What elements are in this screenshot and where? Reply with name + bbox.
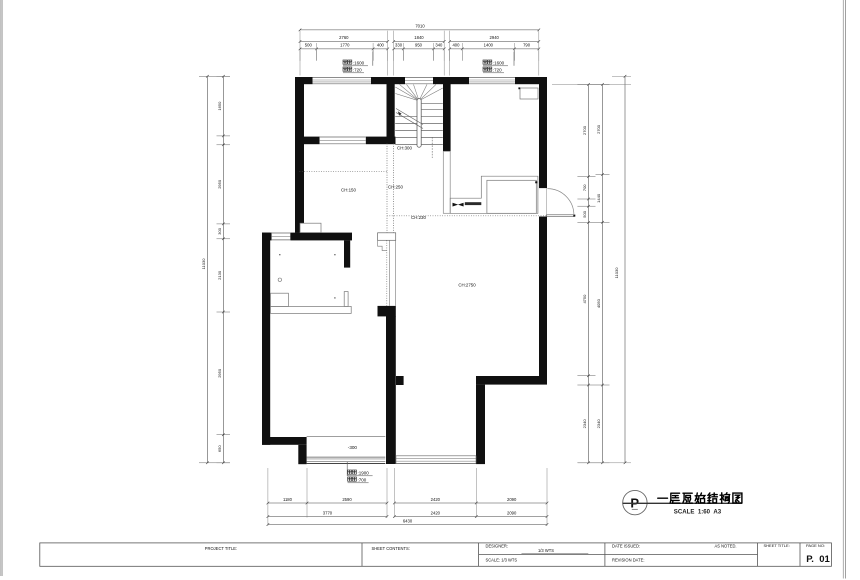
svg-text:400: 400 [452, 43, 460, 48]
svg-text:SCALE: 1/3 WTS: SCALE: 1/3 WTS [486, 558, 518, 563]
svg-text:CH:250: CH:250 [388, 185, 403, 190]
svg-text:2090: 2090 [507, 497, 517, 502]
svg-text::1600: :1600 [493, 60, 505, 65]
svg-text:340: 340 [435, 43, 443, 48]
svg-text:CH:2750: CH:2750 [458, 283, 476, 288]
svg-text:2090: 2090 [507, 510, 517, 515]
svg-text:11030: 11030 [614, 267, 619, 279]
svg-text:400: 400 [377, 43, 385, 48]
svg-text:700: 700 [582, 184, 587, 191]
svg-text:CH:150: CH:150 [341, 188, 356, 193]
svg-text:2130: 2130 [217, 270, 222, 280]
svg-text:4050: 4050 [596, 298, 601, 308]
svg-text:2940: 2940 [490, 35, 500, 40]
svg-text:1180: 1180 [283, 497, 293, 502]
svg-text:DATE ISSUED:: DATE ISSUED: [612, 543, 640, 548]
svg-text:3770: 3770 [323, 510, 333, 515]
svg-text:2700: 2700 [582, 125, 587, 135]
svg-text:CH:230: CH:230 [411, 215, 426, 220]
svg-text:4750: 4750 [582, 294, 587, 304]
svg-text::720: :720 [353, 67, 362, 72]
svg-text:REVISION DATE:: REVISION DATE: [612, 558, 644, 563]
svg-text:2950: 2950 [217, 368, 222, 378]
svg-text:2420: 2420 [431, 510, 441, 515]
svg-text:PROJECT TITLE:: PROJECT TITLE: [205, 546, 237, 551]
svg-text:1/3 WTS: 1/3 WTS [538, 548, 554, 553]
svg-text:DESIGNER:: DESIGNER: [486, 543, 509, 548]
svg-text:2950: 2950 [217, 179, 222, 189]
svg-text::720: :720 [493, 67, 502, 72]
svg-text:SCALE 1:60 A3: SCALE 1:60 A3 [674, 508, 722, 515]
svg-text:CH:300: CH:300 [397, 145, 412, 150]
svg-text:7010: 7010 [415, 24, 425, 29]
svg-text:1650: 1650 [217, 101, 222, 111]
svg-text:11030: 11030 [201, 258, 206, 270]
svg-text:1440: 1440 [596, 193, 601, 203]
svg-text:AS NOTED.: AS NOTED. [715, 543, 737, 548]
svg-text:650: 650 [217, 445, 222, 452]
svg-text::1600: :1600 [353, 60, 365, 65]
svg-text:330: 330 [395, 43, 403, 48]
svg-text:2420: 2420 [431, 497, 441, 502]
svg-text:2700: 2700 [596, 124, 601, 134]
svg-text:950: 950 [415, 43, 423, 48]
svg-text:-300: -300 [348, 445, 358, 450]
svg-text:PAGE NO:: PAGE NO: [806, 543, 825, 548]
svg-text:790: 790 [523, 43, 531, 48]
svg-text:2590: 2590 [342, 497, 352, 502]
svg-text:6430: 6430 [403, 518, 413, 523]
svg-text::700: :700 [358, 477, 367, 482]
svg-text:P. 01: P. 01 [806, 554, 830, 565]
svg-text:1770: 1770 [340, 43, 350, 48]
svg-text:300: 300 [217, 227, 222, 234]
svg-text:500: 500 [305, 43, 313, 48]
svg-text:SHEET CONTENTS:: SHEET CONTENTS: [372, 546, 410, 551]
svg-text:2340: 2340 [596, 419, 601, 429]
svg-text:2340: 2340 [582, 419, 587, 429]
svg-text:1400: 1400 [484, 43, 494, 48]
svg-text:2760: 2760 [339, 35, 349, 40]
svg-text::1900: :1900 [358, 470, 370, 475]
svg-text:500: 500 [582, 210, 587, 217]
svg-text:1840: 1840 [414, 35, 424, 40]
svg-text:SHEET TITLE:: SHEET TITLE: [764, 543, 790, 548]
